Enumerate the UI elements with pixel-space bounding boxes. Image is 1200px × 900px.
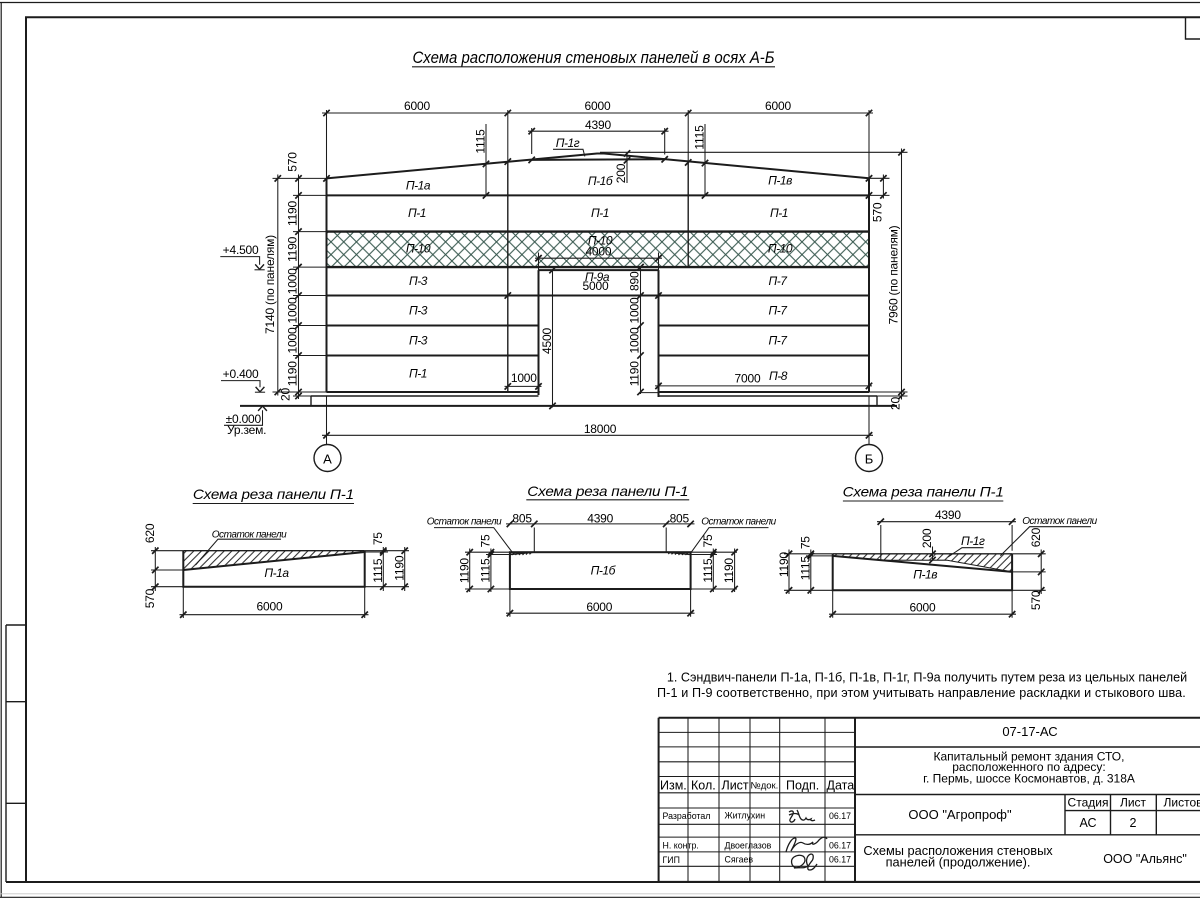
svg-text:П-1б: П-1б <box>588 174 614 188</box>
svg-text:Схема реза панели П-1: Схема реза панели П-1 <box>193 486 354 502</box>
svg-text:1115: 1115 <box>371 558 385 583</box>
svg-text:805: 805 <box>670 511 690 525</box>
svg-text:1190: 1190 <box>457 558 471 584</box>
svg-text:7140 (по панелям): 7140 (по панелям) <box>263 235 277 334</box>
svg-text:2: 2 <box>1130 816 1137 830</box>
svg-text:П-10: П-10 <box>768 242 793 256</box>
svg-text:Б: Б <box>865 452 874 467</box>
svg-text:4500: 4500 <box>540 328 554 354</box>
svg-text:панелей (продолжение).: панелей (продолжение). <box>886 855 1031 870</box>
svg-text:1115: 1115 <box>479 558 493 583</box>
svg-text:П-7: П-7 <box>768 333 788 347</box>
svg-text:06.17: 06.17 <box>829 840 851 850</box>
svg-text:Дата: Дата <box>827 779 855 793</box>
svg-text:4390: 4390 <box>587 511 613 525</box>
svg-text:6000: 6000 <box>585 99 611 113</box>
svg-text:890: 890 <box>628 271 642 291</box>
svg-text:570: 570 <box>1029 590 1043 610</box>
svg-text:1000: 1000 <box>511 371 537 385</box>
svg-text:П-1: П-1 <box>409 367 427 381</box>
svg-text:Лист: Лист <box>722 779 749 793</box>
svg-text:ООО "Альянс": ООО "Альянс" <box>1103 852 1187 866</box>
svg-text:1190: 1190 <box>628 361 642 387</box>
svg-text:06.17: 06.17 <box>829 811 851 821</box>
svg-text:Житлухин: Житлухин <box>725 811 766 821</box>
svg-text:1190: 1190 <box>286 200 300 226</box>
svg-text:Изм.: Изм. <box>660 779 687 793</box>
svg-text:П-10: П-10 <box>406 242 431 256</box>
svg-text:1190: 1190 <box>286 236 300 262</box>
svg-text:7000: 7000 <box>735 372 761 386</box>
svg-text:г. Пермь, шоссе Космонавтов, д: г. Пермь, шоссе Космонавтов, д. 318А <box>923 772 1135 786</box>
svg-text:20: 20 <box>888 397 902 410</box>
svg-text:1190: 1190 <box>392 555 406 581</box>
svg-text:1190: 1190 <box>722 558 736 584</box>
svg-text:П-1б: П-1б <box>591 563 617 577</box>
svg-text:4000: 4000 <box>585 245 611 259</box>
svg-text:07-17-АС: 07-17-АС <box>1002 724 1057 739</box>
svg-text:6000: 6000 <box>586 600 612 614</box>
svg-text:+4.500: +4.500 <box>223 243 259 257</box>
svg-text:П-3: П-3 <box>409 274 428 288</box>
svg-text:Подп.: Подп. <box>786 779 819 793</box>
svg-text:620: 620 <box>1029 527 1043 547</box>
svg-text:Лист: Лист <box>1120 796 1147 810</box>
svg-text:Кол.: Кол. <box>691 779 716 793</box>
svg-text:П-1г: П-1г <box>556 136 580 150</box>
svg-text:№док.: №док. <box>751 781 779 792</box>
svg-text:А: А <box>323 452 332 467</box>
svg-text:Остаток панели: Остаток панели <box>212 529 287 540</box>
svg-text:1000: 1000 <box>628 327 642 353</box>
svg-text:200: 200 <box>614 163 628 183</box>
svg-text:75: 75 <box>701 534 715 547</box>
svg-text:75: 75 <box>479 534 493 547</box>
svg-text:75: 75 <box>371 532 385 545</box>
svg-text:1000: 1000 <box>628 297 642 323</box>
svg-text:6000: 6000 <box>910 601 936 615</box>
svg-text:1000: 1000 <box>286 297 300 323</box>
svg-text:П-7: П-7 <box>768 274 788 288</box>
svg-text:805: 805 <box>512 511 532 525</box>
svg-text:П-7: П-7 <box>768 303 788 317</box>
svg-text:П-1а: П-1а <box>264 566 289 580</box>
svg-text:570: 570 <box>871 202 885 222</box>
svg-text:570: 570 <box>143 588 157 608</box>
svg-text:1000: 1000 <box>286 268 300 294</box>
svg-text:1115: 1115 <box>701 558 715 583</box>
svg-text:4390: 4390 <box>585 118 611 132</box>
svg-text:Остаток панели: Остаток панели <box>1022 516 1097 527</box>
svg-text:6000: 6000 <box>257 600 283 614</box>
svg-text:Н. контр.: Н. контр. <box>663 841 699 851</box>
svg-text:П-1г: П-1г <box>961 534 985 548</box>
svg-text:П-3: П-3 <box>409 303 428 317</box>
svg-text:Сягаев: Сягаев <box>725 855 754 865</box>
svg-text:570: 570 <box>286 152 300 172</box>
svg-text:Схема расположения стеновых па: Схема расположения стеновых панелей в ос… <box>413 49 775 67</box>
svg-text:Стадия: Стадия <box>1068 796 1109 810</box>
svg-text:П-1: П-1 <box>770 206 788 220</box>
svg-text:Схема реза панели П-1: Схема реза панели П-1 <box>843 484 1004 500</box>
svg-text:6000: 6000 <box>765 99 791 113</box>
svg-text:П-1а: П-1а <box>406 179 431 193</box>
svg-text:1000: 1000 <box>286 327 300 353</box>
svg-text:1115: 1115 <box>692 125 706 150</box>
svg-text:П-8: П-8 <box>769 369 788 383</box>
svg-text:П-1 и П-9 соответственно, при: П-1 и П-9 соответственно, при этом учиты… <box>657 686 1186 700</box>
svg-text:П-1в: П-1в <box>768 174 792 188</box>
svg-text:+0.400: +0.400 <box>223 367 259 381</box>
svg-text:П-1: П-1 <box>591 206 609 220</box>
svg-text:200: 200 <box>920 528 934 548</box>
svg-text:П-3: П-3 <box>409 333 428 347</box>
svg-text:Остаток панели: Остаток панели <box>427 517 502 528</box>
svg-text:АС: АС <box>1079 816 1096 830</box>
svg-text:П-1: П-1 <box>408 206 426 220</box>
svg-text:ГИП: ГИП <box>663 855 680 865</box>
svg-text:П-1в: П-1в <box>913 567 937 581</box>
svg-text:Остаток панели: Остаток панели <box>701 517 776 528</box>
svg-text:7960 (по панелям): 7960 (по панелям) <box>887 225 901 324</box>
svg-text:Двоеглазов: Двоеглазов <box>725 840 772 850</box>
svg-text:1115: 1115 <box>798 556 812 581</box>
svg-text:4390: 4390 <box>935 508 961 522</box>
svg-text:1. Сэндвич-панели П-1а, П-1б,: 1. Сэндвич-панели П-1а, П-1б, П-1в, П-1г… <box>667 671 1187 685</box>
svg-text:1115: 1115 <box>473 129 487 154</box>
svg-text:6000: 6000 <box>404 99 430 113</box>
svg-text:Листов: Листов <box>1164 796 1200 810</box>
svg-text:06.17: 06.17 <box>829 855 851 865</box>
svg-text:620: 620 <box>143 523 157 543</box>
svg-text:1190: 1190 <box>777 552 791 578</box>
svg-text:75: 75 <box>798 536 812 549</box>
svg-text:Схема реза панели П-1: Схема реза панели П-1 <box>527 483 688 499</box>
svg-text:5000: 5000 <box>583 279 609 293</box>
svg-text:18000: 18000 <box>584 422 617 436</box>
svg-text:1190: 1190 <box>286 361 300 387</box>
svg-text:Разработал: Разработал <box>663 811 711 821</box>
svg-text:ООО "Агропроф": ООО "Агропроф" <box>908 807 1012 822</box>
